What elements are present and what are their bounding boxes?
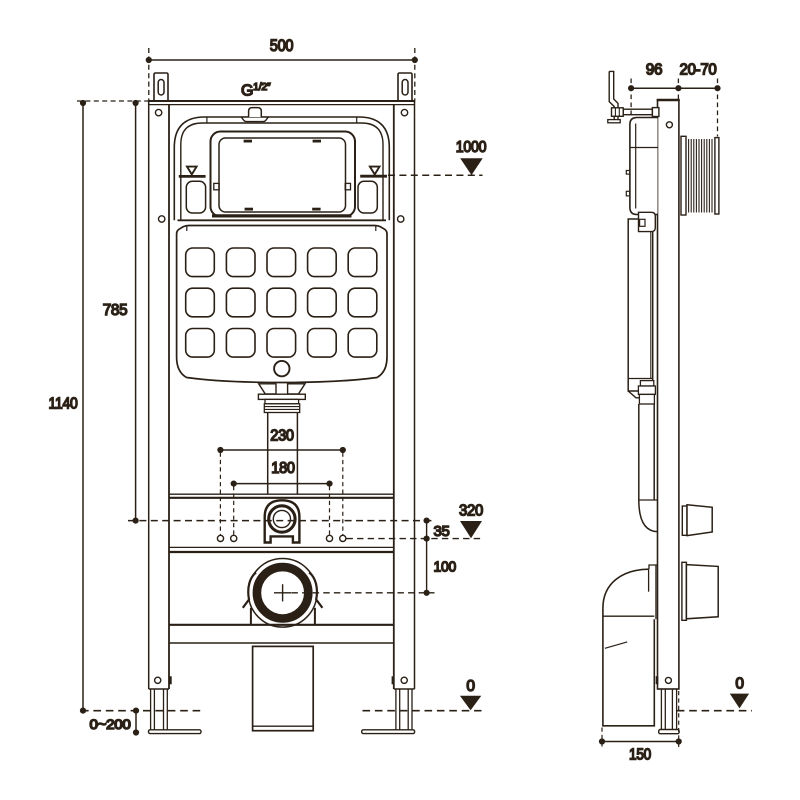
svg-text:1000: 1000 bbox=[456, 139, 487, 156]
svg-text:20-70: 20-70 bbox=[680, 62, 718, 79]
svg-text:0~200: 0~200 bbox=[90, 717, 131, 732]
svg-text:230: 230 bbox=[270, 428, 294, 445]
svg-text:785: 785 bbox=[103, 302, 128, 319]
svg-text:96: 96 bbox=[646, 62, 663, 79]
svg-text:320: 320 bbox=[459, 503, 484, 520]
svg-text:1140: 1140 bbox=[49, 396, 79, 413]
svg-text:100: 100 bbox=[434, 559, 457, 576]
svg-text:0: 0 bbox=[466, 678, 475, 695]
svg-text:0: 0 bbox=[735, 676, 744, 693]
svg-text:35: 35 bbox=[434, 523, 450, 540]
svg-text:500: 500 bbox=[270, 37, 294, 55]
svg-text:180: 180 bbox=[271, 460, 295, 477]
svg-text:150: 150 bbox=[629, 747, 652, 764]
